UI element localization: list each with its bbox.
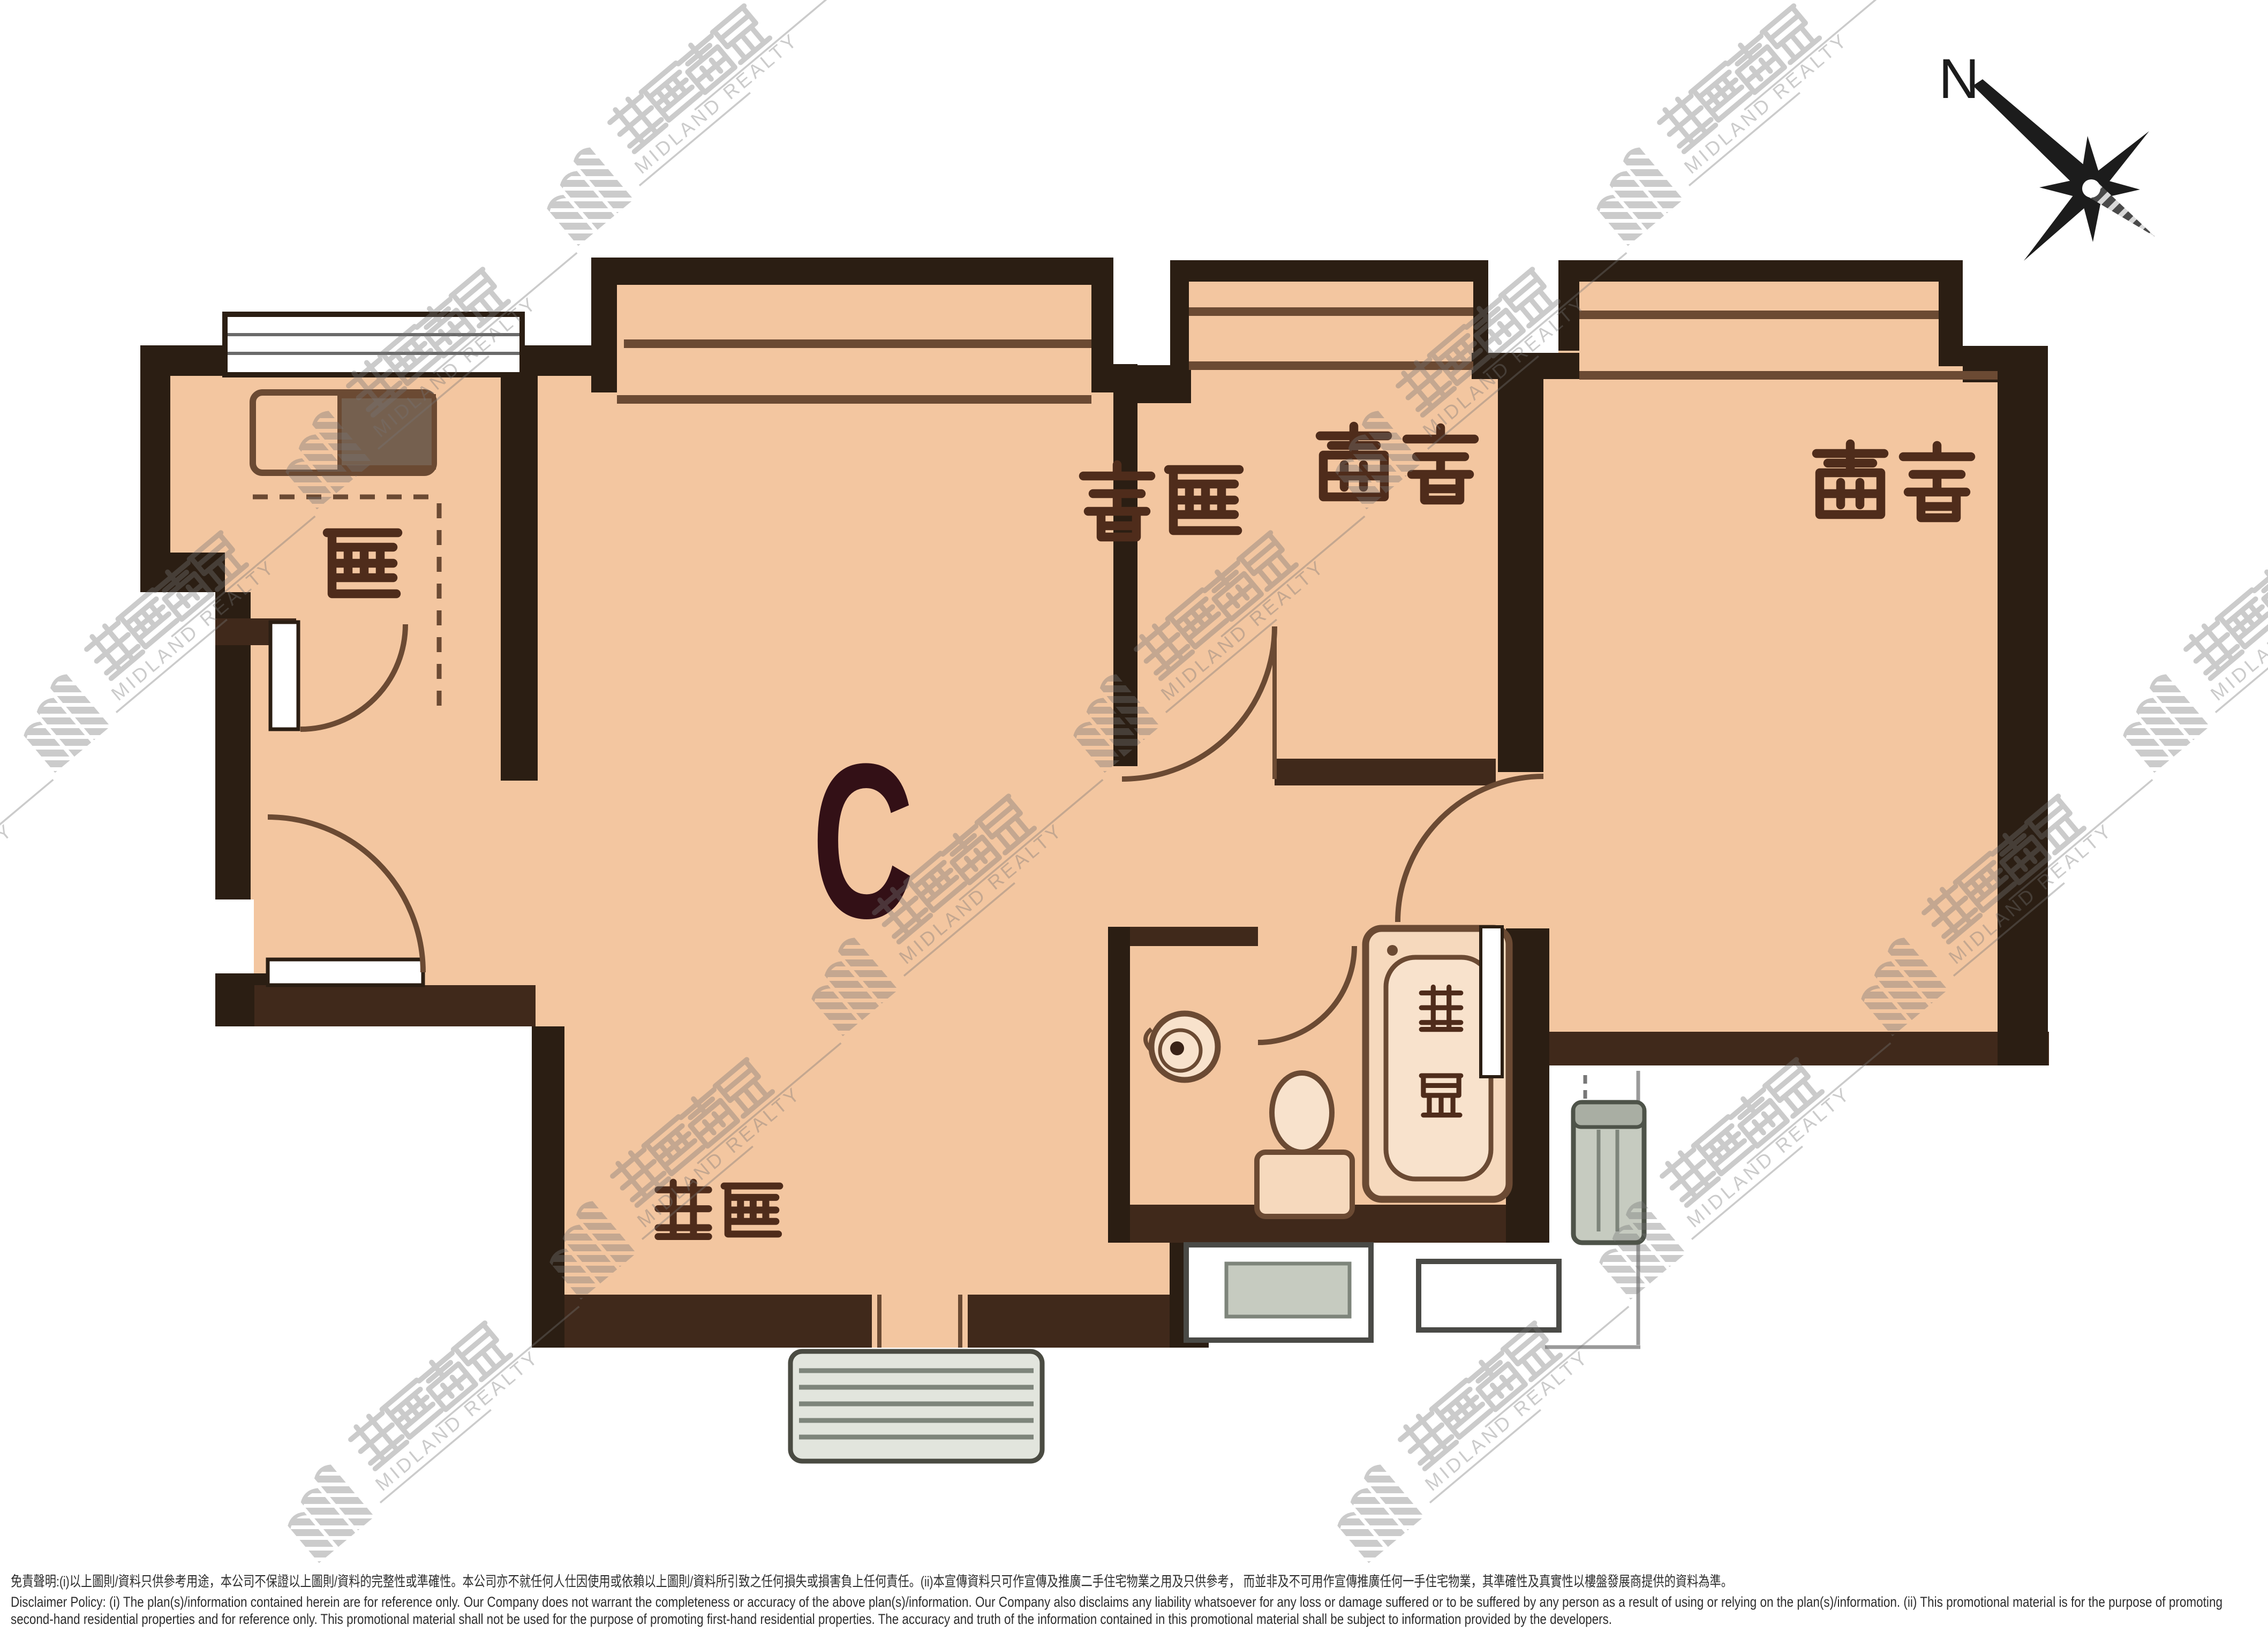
svg-text:N: N [1939, 48, 1979, 110]
svg-text:Disclaimer Policy: (i) The pla: Disclaimer Policy: (i) The plan(s)/infor… [11, 1594, 2222, 1610]
svg-text:second-hand residential proper: second-hand residential properties and f… [11, 1611, 1612, 1627]
svg-text:免責聲明:(i)以上圖則/資料只供參考用途，本公司不保證以上: 免責聲明:(i)以上圖則/資料只供參考用途，本公司不保證以上圖則/資料的完整性或… [11, 1574, 1732, 1590]
svg-text:C: C [812, 718, 914, 964]
